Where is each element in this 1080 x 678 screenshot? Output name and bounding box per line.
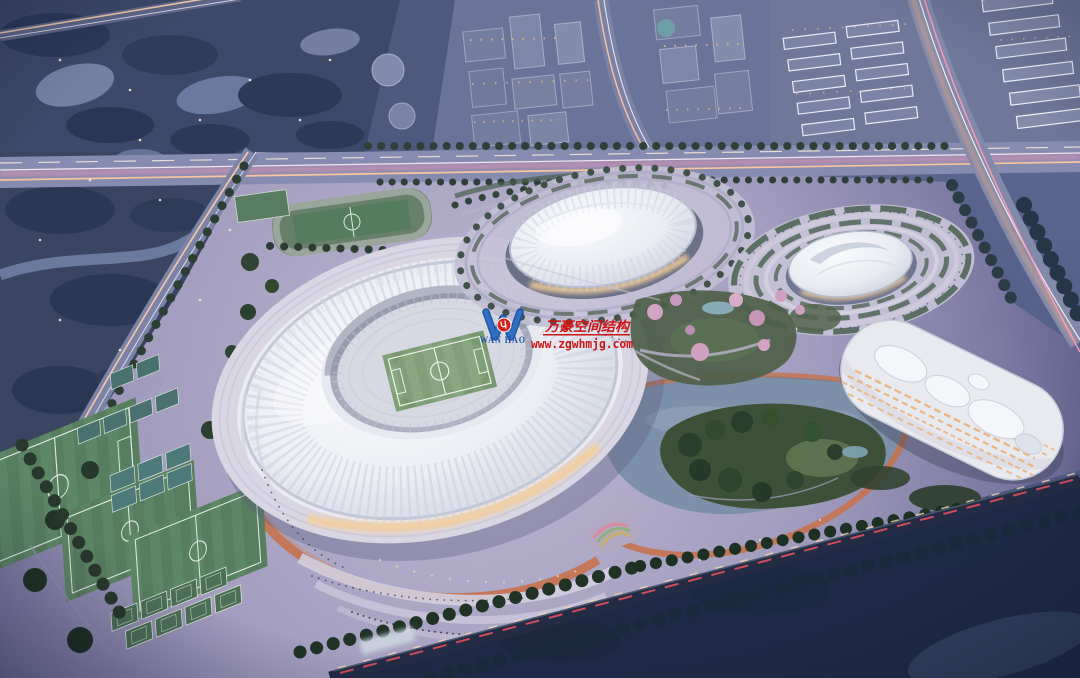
- logo-wordmark: WAN HAO: [480, 335, 526, 345]
- rendering-image: WAN HAO 万豪空间结构 www.zgwhmjg.com: [0, 0, 1080, 678]
- watermark-website: www.zgwhmjg.com: [531, 337, 633, 351]
- logo-red-badge: [497, 318, 511, 332]
- scene-canvas: WAN HAO 万豪空间结构 www.zgwhmjg.com: [0, 0, 1080, 678]
- watermark-underline: [543, 334, 630, 336]
- watermark-company-name: 万豪空间结构: [544, 319, 632, 335]
